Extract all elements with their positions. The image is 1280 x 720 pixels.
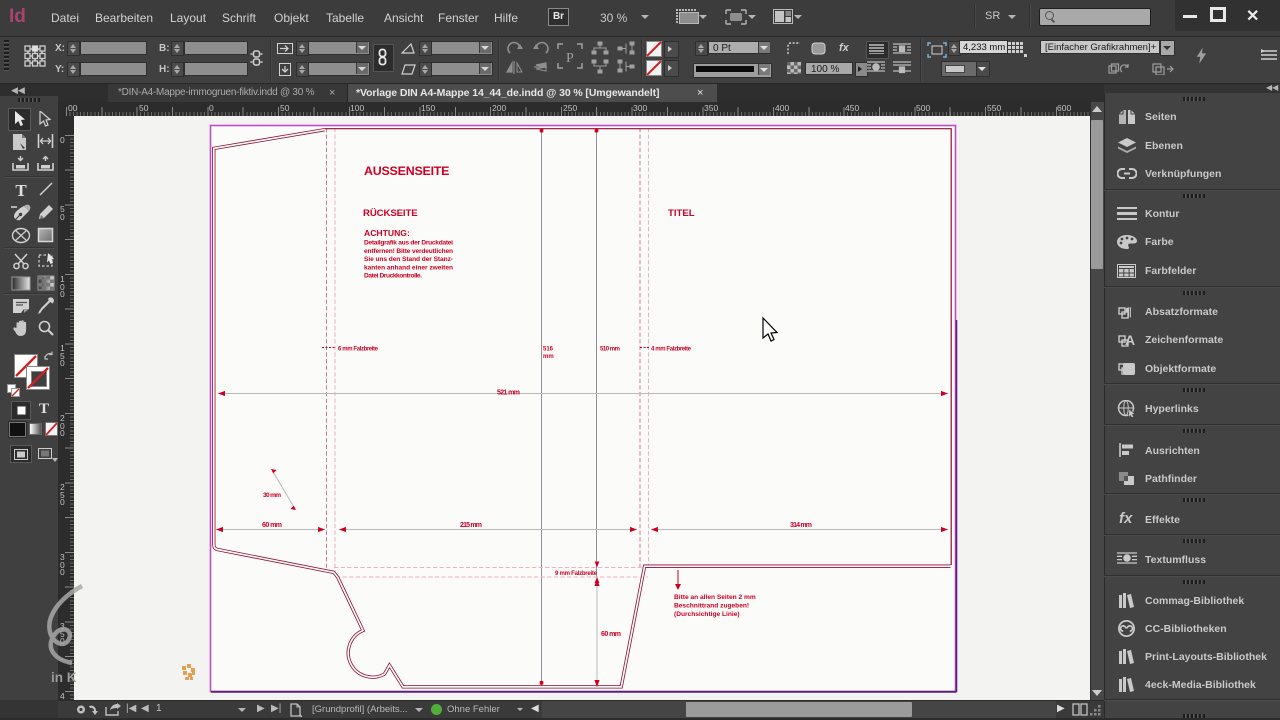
svg-text:mm: mm bbox=[543, 354, 554, 360]
svg-text:9 mm Falzbreite: 9 mm Falzbreite bbox=[555, 571, 598, 577]
svg-text:entfernen! Bitte verdeutlichen: entfernen! Bitte verdeutlichen bbox=[364, 248, 453, 255]
svg-text:Detailgrafik aus der Druckdate: Detailgrafik aus der Druckdatei bbox=[364, 240, 453, 247]
svg-text:215 mm: 215 mm bbox=[460, 522, 482, 529]
svg-text:Beschnittrand zugeben!: Beschnittrand zugeben! bbox=[674, 603, 749, 610]
svg-text:Bitte an allen Seiten 2 mm: Bitte an allen Seiten 2 mm bbox=[674, 594, 756, 601]
svg-text:510 mm: 510 mm bbox=[600, 347, 620, 353]
svg-text:TITEL: TITEL bbox=[668, 208, 695, 219]
svg-text:(Durchsichtige Linie): (Durchsichtige Linie) bbox=[674, 611, 740, 618]
svg-text:kanten anhand einer zweiten: kanten anhand einer zweiten bbox=[364, 264, 453, 271]
svg-text:P: P bbox=[566, 51, 574, 66]
svg-text:521 mm: 521 mm bbox=[497, 390, 520, 397]
svg-text:Datei Druckkontrolle.: Datei Druckkontrolle. bbox=[364, 273, 422, 280]
svg-text:314 mm: 314 mm bbox=[790, 522, 812, 529]
svg-text:6 mm Falzbreite: 6 mm Falzbreite bbox=[338, 347, 379, 353]
svg-text:RÜCKSEITE: RÜCKSEITE bbox=[363, 208, 418, 219]
svg-text:Sie uns den Stand der Stanz-: Sie uns den Stand der Stanz- bbox=[364, 256, 453, 263]
svg-text:in K: in K bbox=[51, 670, 77, 685]
svg-text:60 mm: 60 mm bbox=[262, 522, 282, 529]
svg-text:516: 516 bbox=[543, 347, 554, 353]
svg-text:AUSSENSEITE: AUSSENSEITE bbox=[364, 164, 449, 178]
svg-text:ACHTUNG:: ACHTUNG: bbox=[364, 228, 410, 238]
svg-text:30 mm: 30 mm bbox=[263, 492, 281, 499]
svg-text:4 mm Falzbreite: 4 mm Falzbreite bbox=[651, 347, 692, 353]
svg-text:60 mm: 60 mm bbox=[601, 631, 621, 638]
